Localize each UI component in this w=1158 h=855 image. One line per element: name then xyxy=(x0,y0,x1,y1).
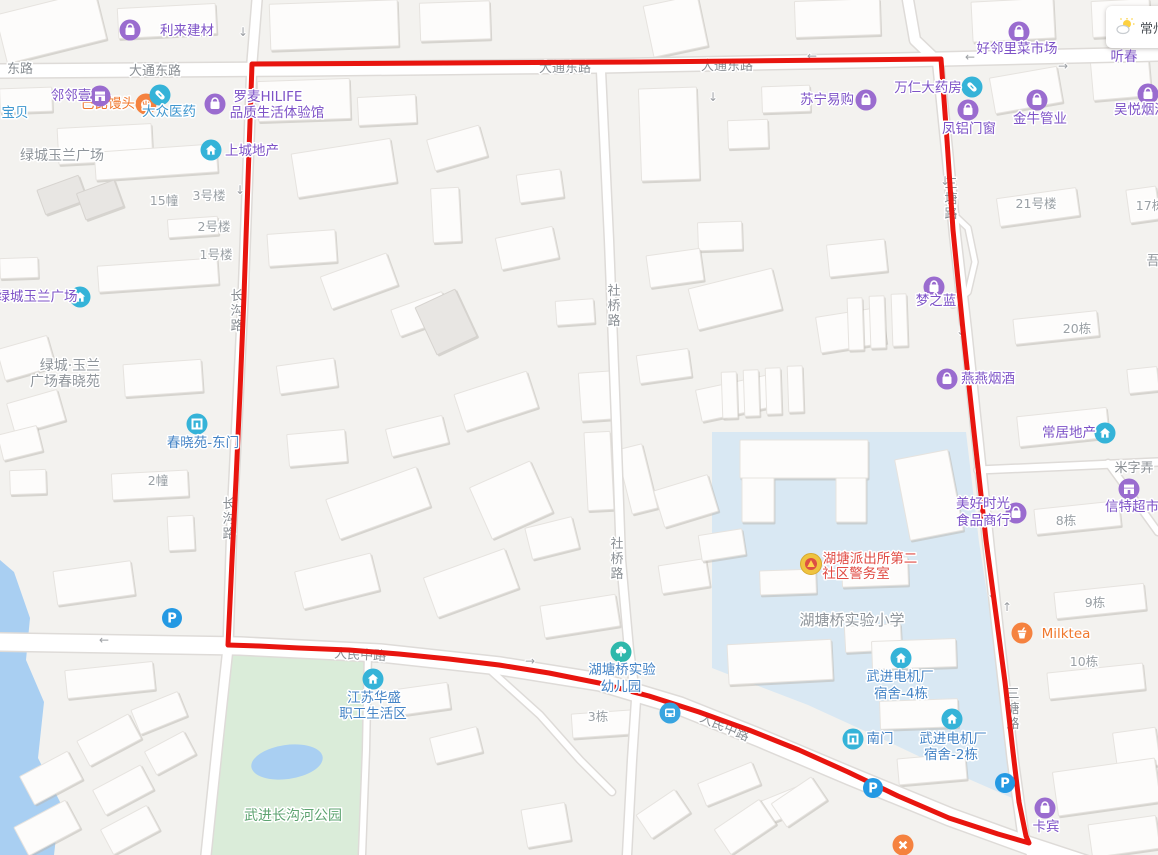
building xyxy=(267,230,337,267)
poi-常居地产[interactable]: 常居地产 xyxy=(1042,423,1116,444)
svg-text:路: 路 xyxy=(607,313,620,329)
building xyxy=(10,469,47,494)
poi-label: 宿舍-4栋 xyxy=(874,685,928,702)
building xyxy=(787,366,804,412)
svg-text:社: 社 xyxy=(607,283,620,299)
building-label: 1号楼 xyxy=(200,247,233,262)
poi-label: 宿舍-2栋 xyxy=(924,746,978,763)
road-label-vertical: 社桥路 xyxy=(610,536,623,582)
building xyxy=(891,294,908,346)
road-label: 米字弄 xyxy=(1114,461,1153,476)
poi-label: 罗麦HILIFE xyxy=(234,89,303,105)
poi-label: 武进电机厂 xyxy=(866,669,934,685)
building xyxy=(740,440,868,478)
poi-label: 利来建材 xyxy=(160,23,214,39)
building-label: 9栋 xyxy=(1085,595,1105,610)
building-label: 20栋 xyxy=(1063,321,1091,336)
poi-label: 食品商行 xyxy=(956,512,1010,529)
road-label: 大通东路 xyxy=(129,63,181,79)
poi-label: 金牛管业 xyxy=(1013,111,1067,127)
poi-燕燕烟酒[interactable]: 燕燕烟酒 xyxy=(937,369,1016,390)
building xyxy=(123,359,203,396)
poi-label: 上城地产 xyxy=(225,143,279,159)
building xyxy=(521,802,571,847)
poi-label: 江苏华盛 xyxy=(347,690,401,706)
building xyxy=(584,431,614,510)
poi-停车场[interactable]: P xyxy=(863,778,883,798)
building xyxy=(431,187,462,242)
building-label: 2号楼 xyxy=(198,219,231,234)
poi-label: 梦之蓝 xyxy=(916,293,957,309)
building xyxy=(287,430,348,467)
poi-label: 大众医药 xyxy=(142,104,196,120)
oneway-arrow: → xyxy=(1058,59,1068,73)
building-label: 21号楼 xyxy=(1016,196,1057,211)
building xyxy=(269,0,399,50)
building-label: 3栋 xyxy=(588,709,608,724)
poi-label: 社区警务室 xyxy=(822,565,890,582)
poi-停车场[interactable]: P xyxy=(995,773,1015,793)
building xyxy=(555,299,595,326)
building xyxy=(826,239,887,277)
building xyxy=(728,119,769,148)
map-canvas[interactable]: 东路大通东路大通东路大通东路人民中路人民中路米字弄长沟路长沟路社桥路社桥路三塘路… xyxy=(0,0,1158,855)
svg-text:P: P xyxy=(868,782,878,797)
area-label: 吾 xyxy=(1146,254,1158,269)
road-label-vertical: 社桥路 xyxy=(607,283,620,329)
area-label: 绿城玉兰广场 xyxy=(20,148,104,164)
poi-label: 春晓苑-东门 xyxy=(167,435,239,451)
oneway-arrow: ← xyxy=(965,50,975,64)
poi-停车场[interactable]: P xyxy=(162,608,182,628)
building xyxy=(869,296,886,348)
poi-label: 湖塘派出所第二 xyxy=(823,550,918,567)
building xyxy=(698,221,743,251)
building xyxy=(742,478,774,522)
building xyxy=(872,639,957,670)
area-label: 广场春晓苑 xyxy=(30,374,100,390)
oneway-arrow: ↓ xyxy=(238,25,248,39)
poi-万仁大药房[interactable]: 万仁大药房 xyxy=(894,77,982,98)
area-label: 绿城·玉兰 xyxy=(40,358,100,374)
poi-宝贝[interactable]: 宝贝 xyxy=(2,105,29,121)
poi-上城地产[interactable]: 上城地产 xyxy=(201,140,280,161)
oneway-arrow: → xyxy=(525,654,535,668)
building xyxy=(743,370,760,416)
poi-label: 常居地产 xyxy=(1042,425,1096,441)
poi-label: 美好时光 xyxy=(956,496,1010,512)
building xyxy=(727,639,833,684)
poi-南门[interactable]: 南门 xyxy=(843,729,894,750)
poi-label: 信特超市 xyxy=(1105,498,1158,515)
weather-widget[interactable]: 常州 xyxy=(1106,6,1158,48)
oneway-arrow: ← xyxy=(99,633,109,647)
building xyxy=(836,478,866,522)
building xyxy=(167,515,195,550)
poi-label: Milktea xyxy=(1042,626,1091,642)
road-label: 东路 xyxy=(7,61,33,77)
building xyxy=(578,371,613,421)
poi-label: 品质生活体验馆 xyxy=(230,105,325,121)
building xyxy=(721,372,738,418)
building xyxy=(794,0,880,37)
poi-label: 绿城玉兰广场 xyxy=(0,289,78,305)
poi-公交站[interactable] xyxy=(660,703,681,724)
area-label: 武进长沟河公园 xyxy=(244,808,342,824)
poi-label: 南门 xyxy=(867,731,894,747)
poi-利来建材[interactable]: 利来建材 xyxy=(120,20,215,41)
poi-label: 武进电机厂 xyxy=(919,731,987,747)
building xyxy=(357,95,416,126)
poi-label: 吴悦烟酒 xyxy=(1114,102,1158,118)
building xyxy=(847,298,864,350)
weather-city: 常州 xyxy=(1140,18,1158,37)
building xyxy=(516,169,563,203)
area-label: 湖塘桥实验小学 xyxy=(799,611,904,629)
oneway-arrow: ↓ xyxy=(708,90,718,104)
oneway-arrow: ↑ xyxy=(1002,600,1012,614)
svg-text:路: 路 xyxy=(610,566,623,582)
poi-苏宁易购[interactable]: 苏宁易购 xyxy=(800,90,877,111)
building-label: 15幢 xyxy=(150,193,179,208)
svg-text:桥: 桥 xyxy=(607,299,620,314)
poi-label: 卡宾 xyxy=(1033,819,1060,835)
building xyxy=(0,257,38,278)
poi-label: 燕燕烟酒 xyxy=(961,371,1015,387)
poi-label: 宝贝 xyxy=(2,105,29,121)
poi-封路[interactable] xyxy=(893,835,914,855)
poi-label: 好邻里菜市场 xyxy=(977,40,1058,57)
oneway-arrow: ↓ xyxy=(235,183,245,197)
map-viewport: 东路大通东路大通东路大通东路人民中路人民中路米字弄长沟路长沟路社桥路社桥路三塘路… xyxy=(0,0,1158,855)
partly-sunny-icon xyxy=(1115,18,1135,36)
building-label: 8栋 xyxy=(1056,513,1076,528)
poi-label: 幼儿园 xyxy=(601,679,642,695)
building-label: 3号楼 xyxy=(193,188,226,203)
building xyxy=(646,248,704,287)
building xyxy=(419,1,490,41)
poi-邻邻壹[interactable]: 邻邻壹 xyxy=(51,86,111,107)
building xyxy=(1127,366,1158,393)
poi-label: 职工生活区 xyxy=(339,706,407,722)
building-label: 17栋 xyxy=(1136,198,1158,213)
poi-label: 听春 xyxy=(1111,49,1139,65)
building xyxy=(765,368,782,414)
poi-Milktea[interactable]: Milktea xyxy=(1012,623,1091,644)
building-label: 10栋 xyxy=(1070,654,1098,669)
poi-label: 邻邻壹 xyxy=(51,88,92,104)
svg-text:P: P xyxy=(1000,777,1010,792)
poi-label: 万仁大药房 xyxy=(894,80,962,96)
poi-label: 凤铝门窗 xyxy=(942,120,996,137)
building-label: 2幢 xyxy=(148,473,169,488)
svg-text:社: 社 xyxy=(610,536,623,552)
poi-听春[interactable]: 听春 xyxy=(1111,49,1139,65)
poi-绿城玉兰广场[interactable]: 绿城玉兰广场 xyxy=(0,287,91,308)
svg-text:P: P xyxy=(167,612,177,627)
building xyxy=(638,87,699,181)
svg-text:桥: 桥 xyxy=(610,552,623,567)
poi-label: 苏宁易购 xyxy=(800,91,854,108)
poi-label: 湖塘桥实验 xyxy=(588,662,656,678)
